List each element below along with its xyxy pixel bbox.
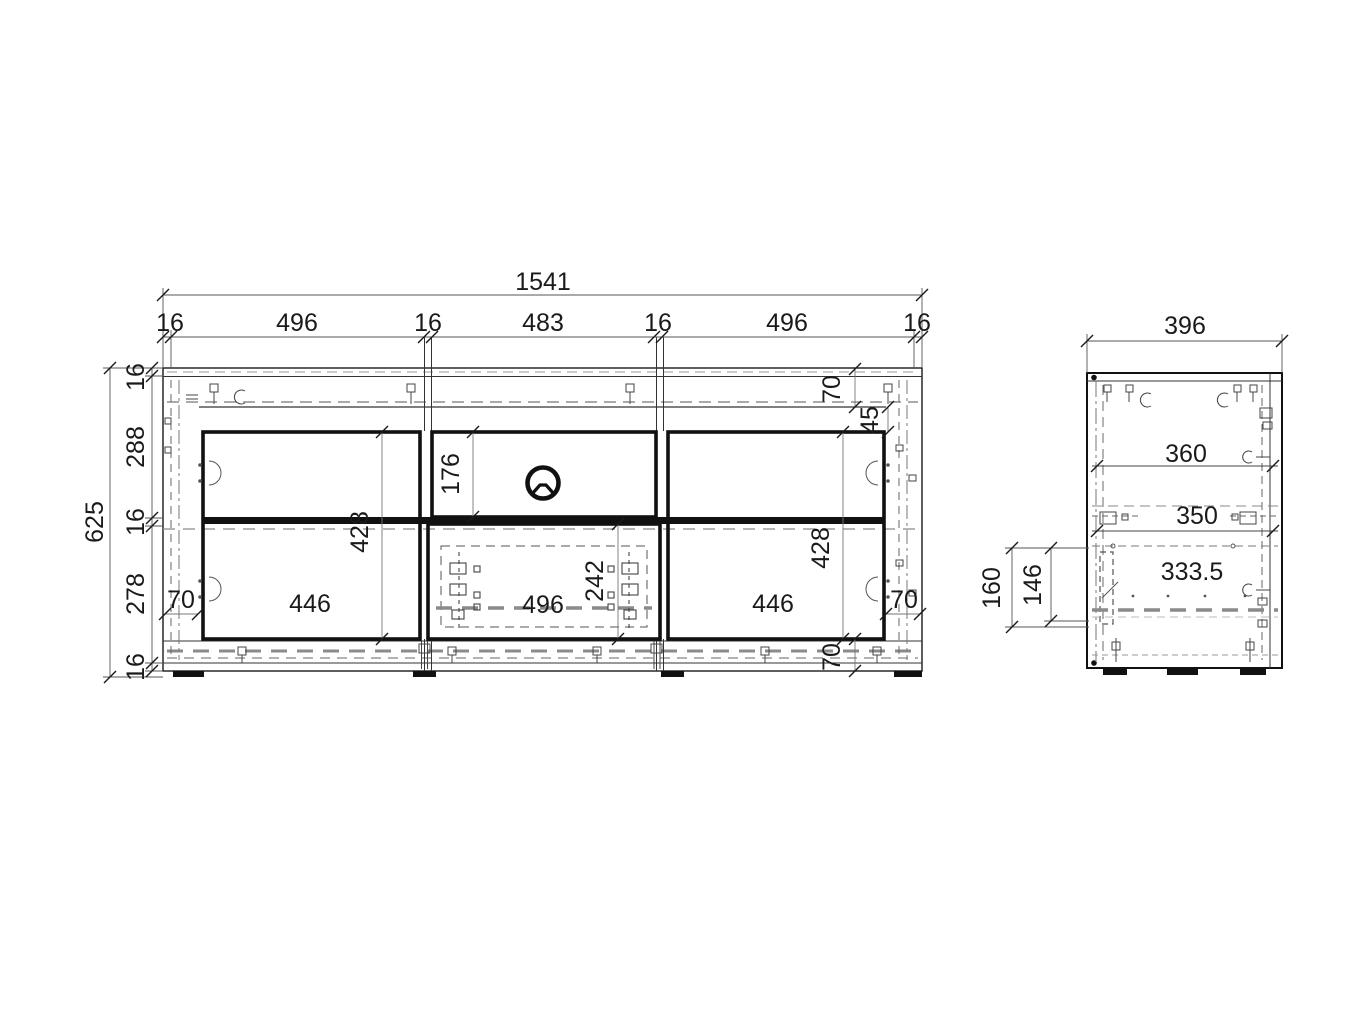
dim-left-seg-2: 16 [122,508,150,536]
dim-right-door-height: 428 [807,527,835,569]
dim-left-width: 446 [289,590,331,618]
dim-bottom-rail: 70 [818,643,846,671]
dim-top-seg-1: 496 [276,309,318,337]
dim-mid-depth: 350 [1176,502,1218,530]
front-feet [173,671,922,677]
dim-top-seg-6: 16 [903,309,931,337]
dim-left-seg-3: 278 [122,573,150,615]
dim-top-rail: 70 [818,375,846,403]
dim-top-depth: 360 [1165,440,1207,468]
dim-left-offset: 70 [167,586,195,614]
dim-top-gap: 45 [856,406,884,434]
dim-left-door-height: 428 [346,511,374,553]
dim-right-offset: 70 [890,586,918,614]
dim-top-seg-2: 16 [414,309,442,337]
technical-drawing-page: 1541 16 496 16 483 16 496 16 625 [0,0,1360,1020]
dim-drawer-inner-height: 242 [581,560,609,602]
dim-right-width: 446 [752,590,794,618]
dim-top-seg-5: 496 [766,309,808,337]
cable-grommet-icon [528,468,559,499]
side-feet [1103,668,1266,675]
dim-bottom-depth: 333.5 [1161,558,1224,586]
dim-plinth-zone-height: 160 [978,567,1006,609]
dim-left-seg-1: 288 [122,426,150,468]
dim-overall-depth: 396 [1164,312,1206,340]
dim-top-seg-0: 16 [156,309,184,337]
front-view: 1541 16 496 16 483 16 496 16 625 [81,268,931,683]
dim-left-seg-0: 16 [122,363,150,391]
front-dims-top: 1541 16 496 16 483 16 496 16 [156,268,931,368]
dim-overall-width: 1541 [515,268,571,296]
dim-left-seg-4: 16 [122,653,150,681]
dim-overall-height: 625 [81,501,109,543]
side-view: 360 350 333.5 396 160 146 [978,312,1288,675]
furniture-dimension-drawing: 1541 16 496 16 483 16 496 16 625 [0,0,1360,1020]
dim-drawer-zone-height: 146 [1019,564,1047,606]
front-dims-left: 625 16 288 16 278 16 [81,362,163,683]
dim-niche-height: 176 [437,453,465,495]
dim-center-width: 496 [522,591,564,619]
dim-top-seg-4: 16 [644,309,672,337]
dim-top-seg-3: 483 [522,309,564,337]
